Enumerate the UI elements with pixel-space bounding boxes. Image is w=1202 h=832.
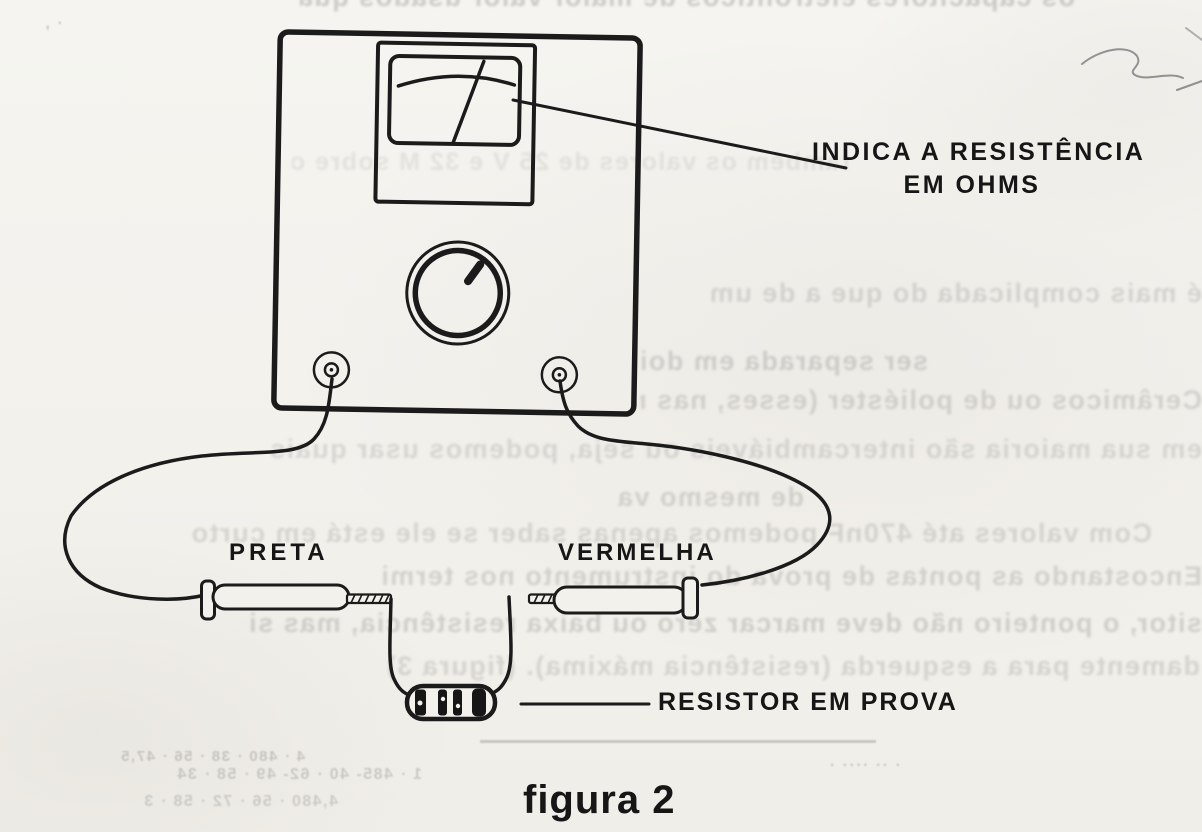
- red-lead-label: VERMELHA: [558, 539, 717, 567]
- resistor-under-test-label: RESISTOR EM PROVA: [658, 688, 958, 717]
- resistor-body: [407, 686, 495, 719]
- resistor-lead-right: [491, 597, 511, 694]
- meter-needle: [453, 61, 483, 142]
- figure-caption: figura 2: [523, 778, 675, 823]
- multimeter: [274, 32, 641, 414]
- meter-reading-label-line1: INDICA A RESISTÊNCIA: [812, 136, 1132, 169]
- terminal-left-center: [330, 368, 334, 372]
- pencil-squiggle-stroke: [1082, 49, 1183, 78]
- range-knob: [415, 250, 501, 336]
- resistor-band-highlight: [418, 701, 423, 706]
- resistor-band-highlight: [441, 697, 445, 701]
- display-window: [389, 56, 520, 145]
- reading-callout-line: [513, 100, 846, 168]
- display-bezel: [375, 43, 535, 205]
- resistor-lead-left: [390, 599, 411, 696]
- ohmmeter-circuit-figure: [0, 0, 1202, 832]
- corner-mark: [1186, 28, 1202, 40]
- pencil-dash: [1177, 81, 1202, 90]
- resistor-band: [453, 690, 462, 716]
- terminal-right-center: [558, 373, 562, 377]
- resistor-band: [472, 689, 486, 717]
- red-probe-cap: [683, 578, 698, 618]
- red-probe-body: [554, 587, 687, 613]
- pencil-squiggle: [1082, 28, 1202, 90]
- resistor-band-highlight: [456, 704, 460, 708]
- black-lead-label: PRETA: [229, 539, 329, 567]
- black-probe: [202, 581, 392, 619]
- red-probe: [529, 578, 698, 618]
- resistor-band: [438, 690, 447, 716]
- scanned-book-page: os capacitores eletrolíticos de maior va…: [0, 0, 1202, 832]
- meter-body: [274, 32, 641, 414]
- meter-reading-label: INDICA A RESISTÊNCIA EM OHMS: [812, 136, 1132, 202]
- meter-reading-label-line2: EM OHMS: [812, 169, 1132, 202]
- scale-arc: [398, 75, 514, 88]
- black-probe-body: [213, 585, 349, 609]
- range-knob-outer-ring: [406, 241, 510, 345]
- knob-pointer-mark: [468, 264, 480, 281]
